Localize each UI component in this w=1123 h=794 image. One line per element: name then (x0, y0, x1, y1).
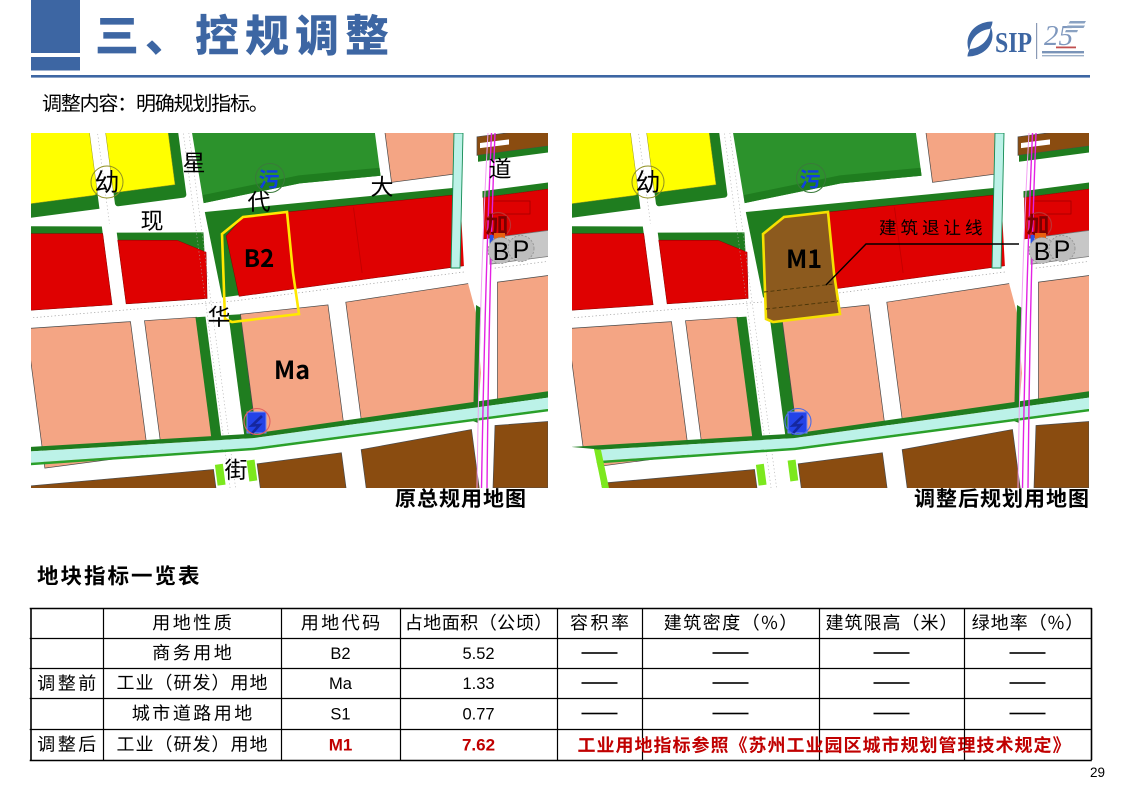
svg-text:5.52: 5.52 (462, 645, 494, 663)
svg-text:SIP: SIP (995, 27, 1032, 59)
svg-text:B: B (1034, 238, 1051, 266)
svg-text:1.33: 1.33 (462, 675, 494, 693)
svg-text:M1: M1 (329, 736, 353, 755)
svg-text:S1: S1 (330, 706, 350, 724)
svg-text:7.62: 7.62 (462, 736, 495, 755)
svg-text:P: P (513, 236, 530, 264)
svg-text:B: B (493, 238, 510, 266)
svg-text:B2: B2 (330, 645, 350, 663)
svg-text:Ma: Ma (329, 675, 353, 693)
svg-text:P: P (1054, 236, 1071, 264)
svg-text:29: 29 (1090, 765, 1105, 780)
svg-text:0.77: 0.77 (462, 706, 494, 724)
